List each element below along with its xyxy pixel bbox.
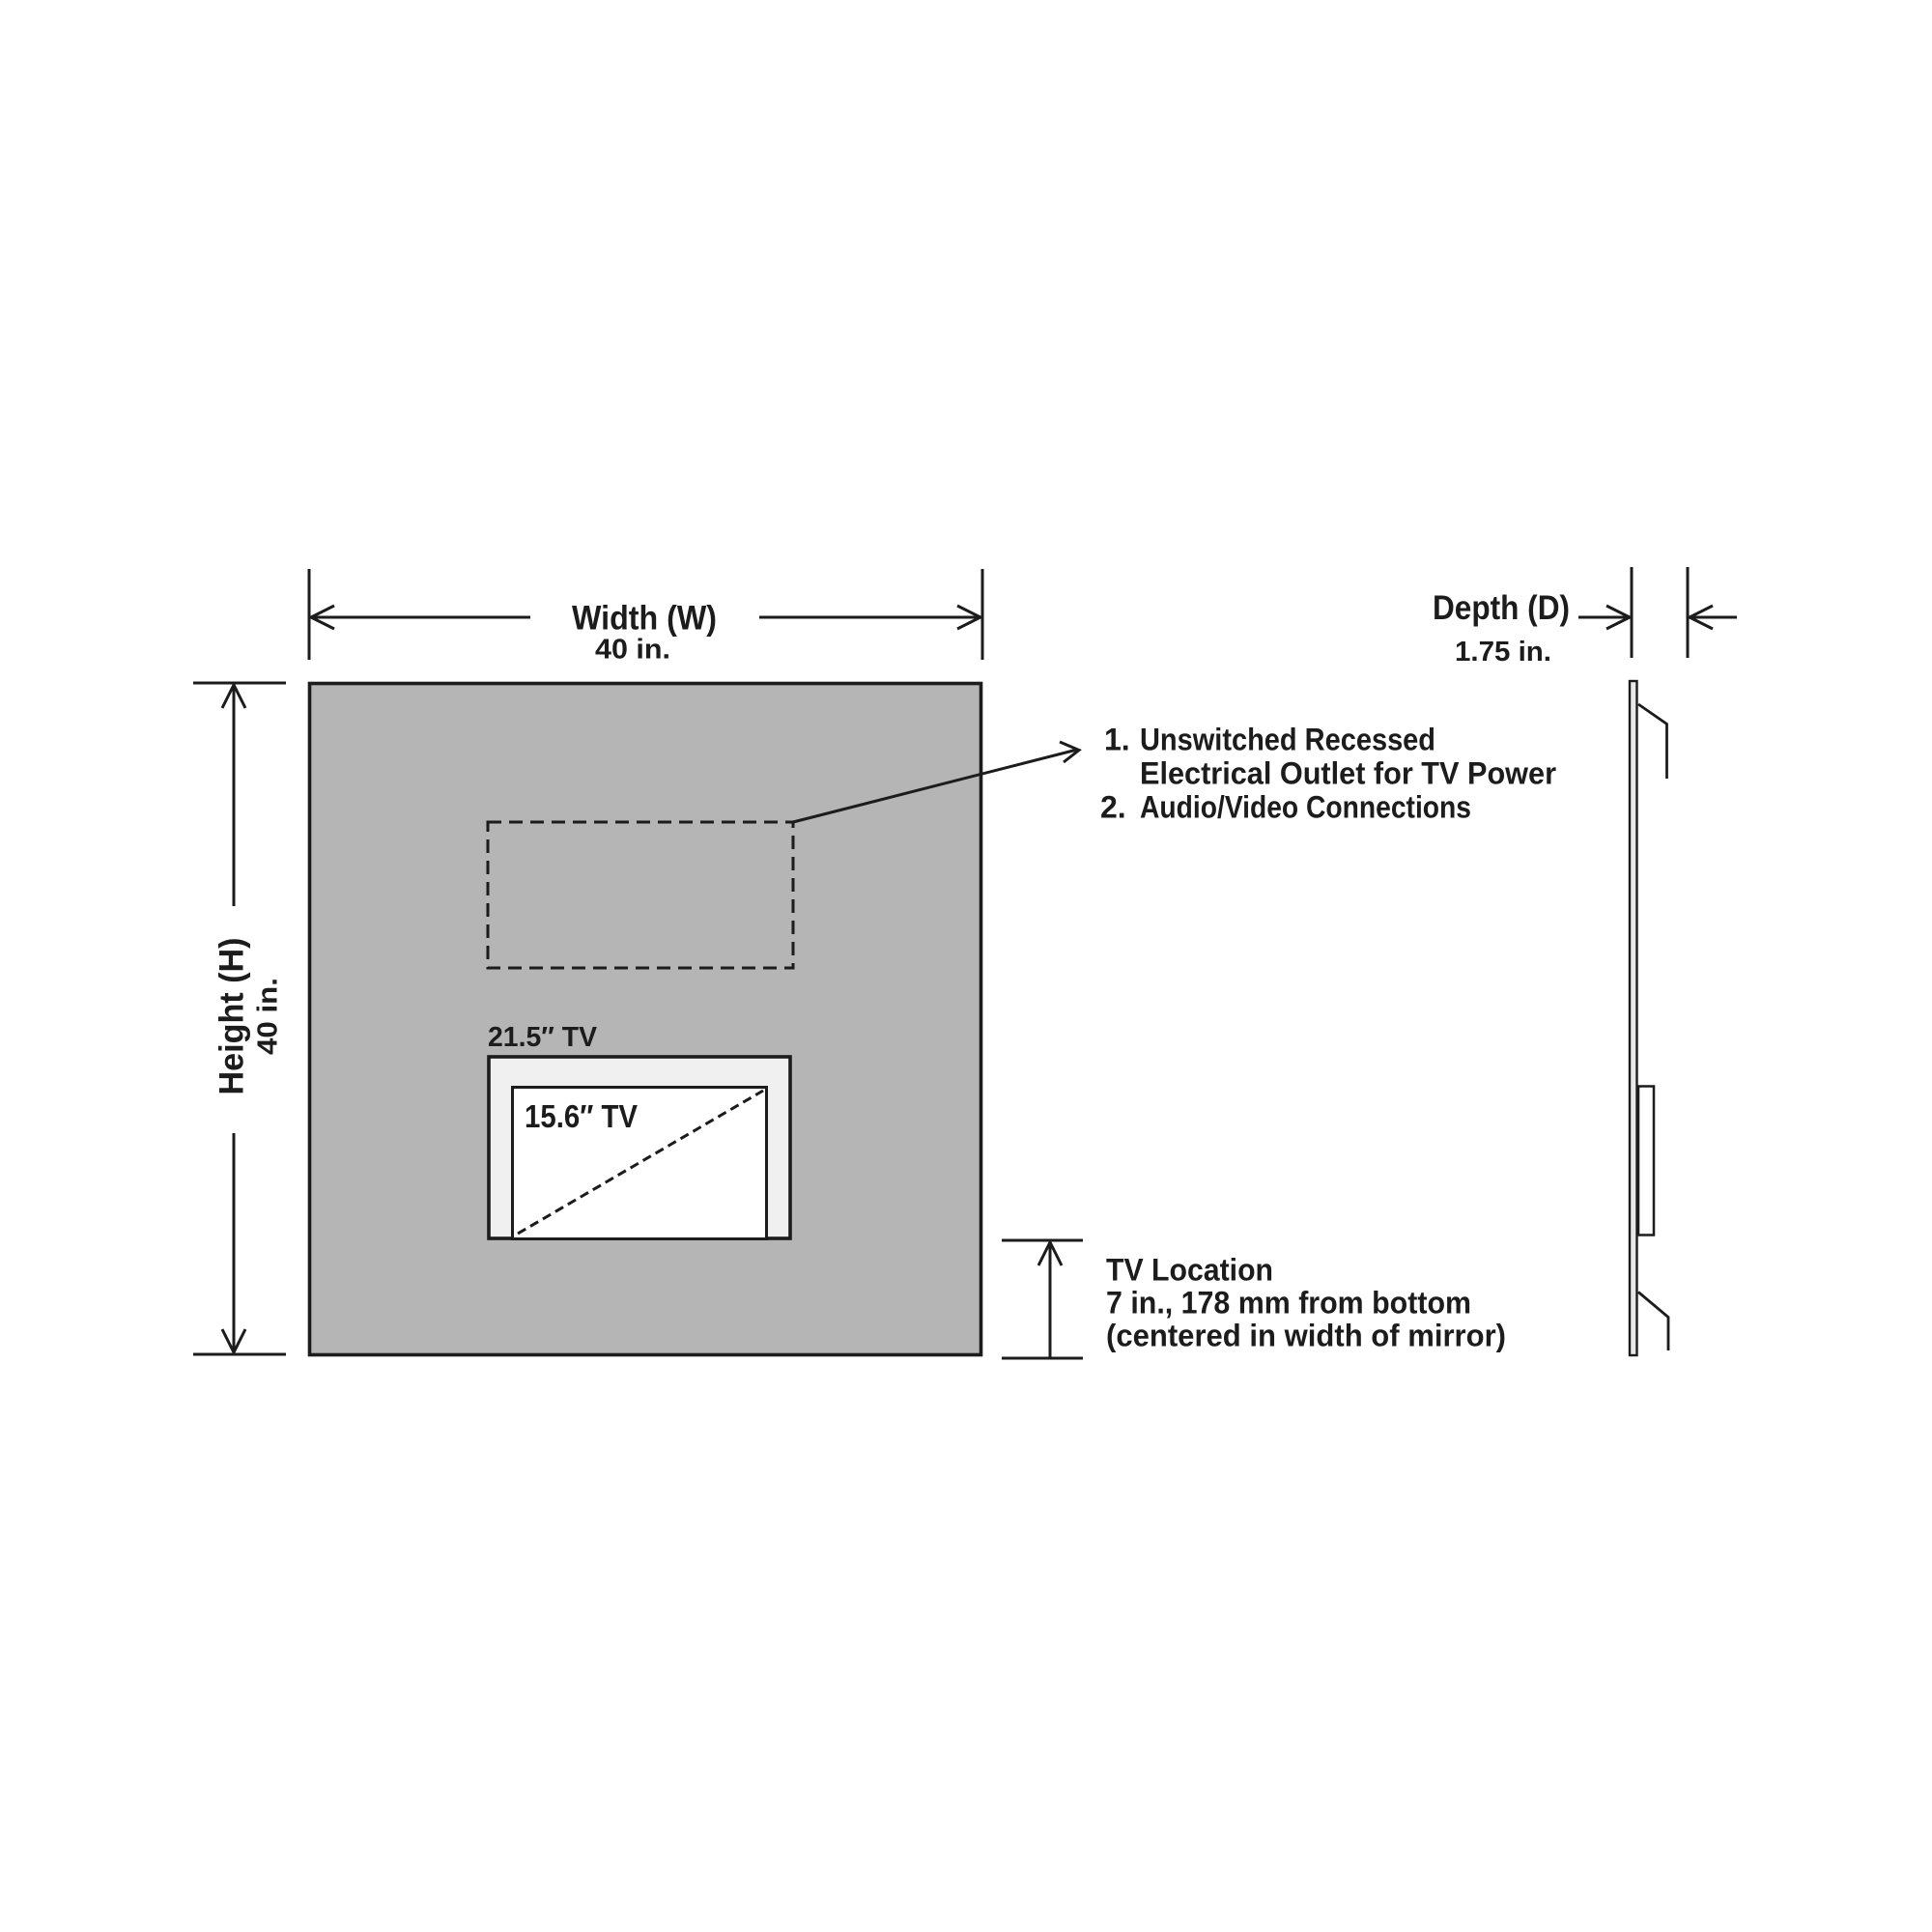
svg-text:40 in.: 40 in. (253, 978, 284, 1055)
svg-text:15.6″ TV: 15.6″ TV (525, 1098, 638, 1134)
svg-text:1.75 in.: 1.75 in. (1455, 637, 1551, 668)
svg-text:2.: 2. (1100, 790, 1126, 825)
svg-text:Width (W): Width (W) (572, 600, 717, 638)
svg-text:Depth (D): Depth (D) (1433, 589, 1570, 627)
svg-text:Audio/Video Connections: Audio/Video Connections (1140, 790, 1471, 825)
svg-text:TV Location: TV Location (1106, 1253, 1273, 1288)
svg-text:Unswitched Recessed: Unswitched Recessed (1140, 723, 1435, 757)
svg-text:Electrical Outlet for TV Power: Electrical Outlet for TV Power (1140, 756, 1556, 791)
svg-text:40 in.: 40 in. (595, 635, 670, 666)
svg-text:Height (H): Height (H) (213, 938, 251, 1095)
svg-text:7 in., 178 mm from bottom: 7 in., 178 mm from bottom (1106, 1286, 1471, 1321)
svg-text:(centered in width of mirror): (centered in width of mirror) (1106, 1319, 1506, 1353)
svg-text:21.5″ TV: 21.5″ TV (488, 1022, 598, 1053)
svg-text:1.: 1. (1104, 723, 1130, 757)
